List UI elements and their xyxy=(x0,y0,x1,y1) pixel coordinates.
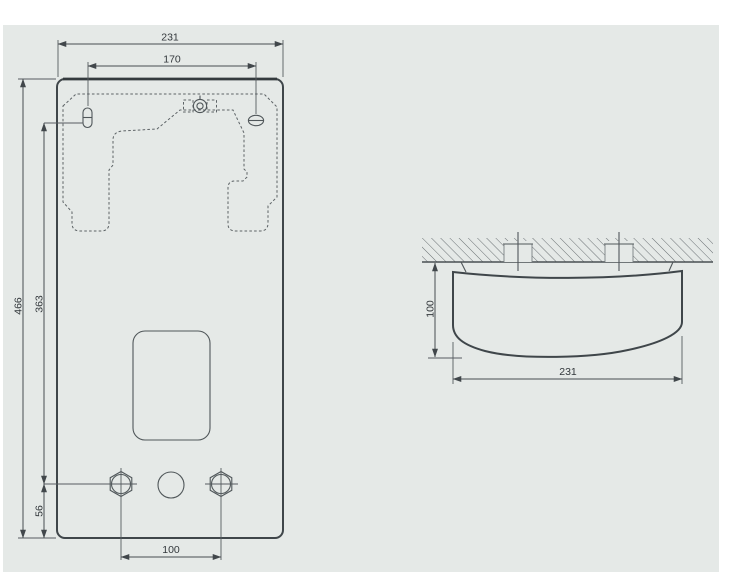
dim-label-overall-height: 466 xyxy=(13,297,25,315)
dim-label-mounting-holes-width: 170 xyxy=(163,54,181,66)
dim-label-overall-width: 231 xyxy=(161,32,179,44)
appliance-front-outline xyxy=(57,79,283,538)
dim-label-top-view-width: 231 xyxy=(559,366,577,378)
dim-label-depth: 100 xyxy=(425,300,437,318)
dimension-drawing-canvas: 231 170 466 363 56 xyxy=(0,0,732,588)
appliance-top-view-outline xyxy=(453,271,682,357)
dim-label-connection-spacing: 100 xyxy=(162,544,180,556)
dim-label-hanger-to-connections: 363 xyxy=(34,295,46,313)
dim-label-connections-to-bottom: 56 xyxy=(34,505,46,517)
wall-section-hatching xyxy=(422,238,713,262)
technical-drawing-page: 231 170 466 363 56 xyxy=(0,0,732,588)
